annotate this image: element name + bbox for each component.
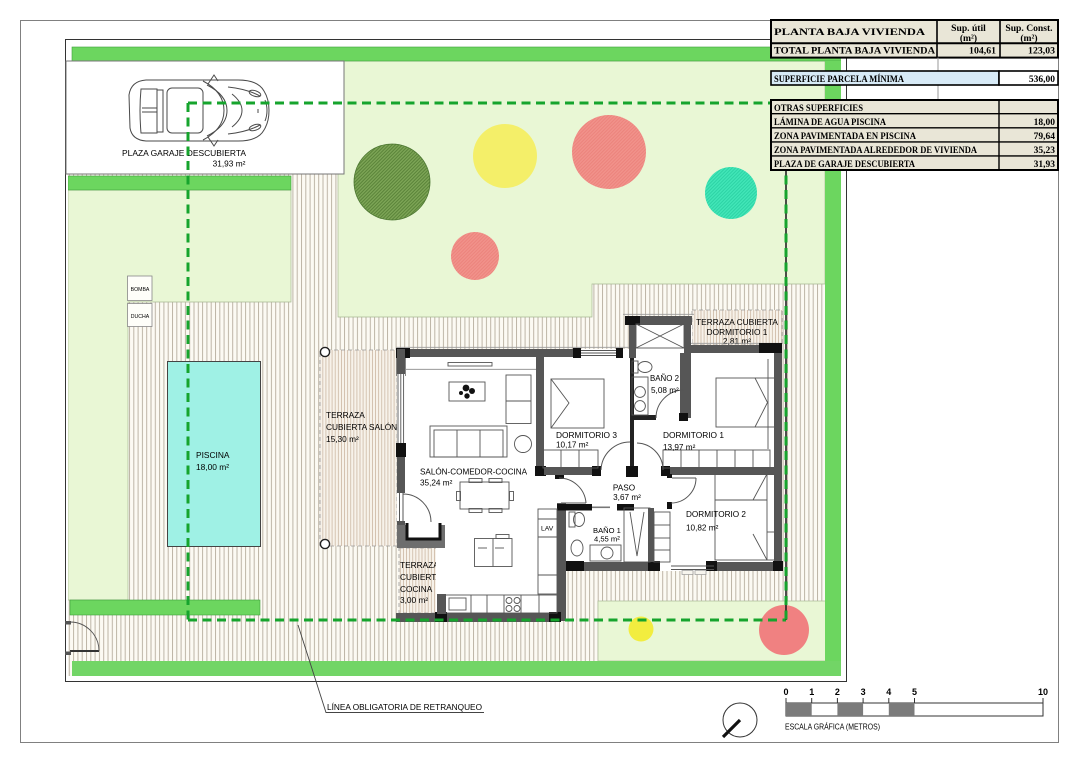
svg-text:TERRAZA CUBIERTA: TERRAZA CUBIERTA xyxy=(696,317,778,327)
svg-text:BAÑO 2: BAÑO 2 xyxy=(650,373,679,383)
svg-text:31,93: 31,93 xyxy=(1034,160,1056,170)
svg-text:10,82 m²: 10,82 m² xyxy=(686,524,719,533)
svg-text:10: 10 xyxy=(1038,687,1048,697)
svg-text:123,03: 123,03 xyxy=(1028,46,1055,57)
svg-text:2: 2 xyxy=(835,687,840,697)
svg-text:TOTAL PLANTA BAJA VIVIENDA: TOTAL PLANTA BAJA VIVIENDA xyxy=(774,46,935,57)
svg-text:LÁMINA DE AGUA PISCINA: LÁMINA DE AGUA PISCINA xyxy=(774,116,886,128)
svg-text:4,55 m²: 4,55 m² xyxy=(594,535,620,544)
svg-text:31,93 m²: 31,93 m² xyxy=(213,159,246,169)
svg-text:(m²): (m²) xyxy=(960,33,977,44)
svg-text:18,00 m²: 18,00 m² xyxy=(196,462,229,472)
svg-text:CUBIERTA: CUBIERTA xyxy=(400,572,442,582)
svg-text:5: 5 xyxy=(912,687,917,697)
svg-text:10,17 m²: 10,17 m² xyxy=(556,441,589,450)
svg-text:35,23: 35,23 xyxy=(1034,146,1056,156)
svg-text:79,64: 79,64 xyxy=(1034,132,1056,142)
svg-text:LAV: LAV xyxy=(541,526,554,533)
svg-text:536,00: 536,00 xyxy=(1029,75,1055,85)
svg-text:CUBIERTA SALÓN: CUBIERTA SALÓN xyxy=(326,422,397,432)
svg-text:SUPERFICIE PARCELA MÍNIMA: SUPERFICIE PARCELA MÍNIMA xyxy=(774,73,904,85)
svg-text:5,08 m²: 5,08 m² xyxy=(651,386,679,395)
svg-text:(m²): (m²) xyxy=(1020,33,1037,44)
svg-text:ZONA PAVIMENTADA EN PISCINA: ZONA PAVIMENTADA EN PISCINA xyxy=(774,132,916,142)
svg-text:3,00 m²: 3,00 m² xyxy=(400,595,428,605)
svg-text:1: 1 xyxy=(809,687,814,697)
svg-text:ESCALA GRÁFICA (METROS): ESCALA GRÁFICA (METROS) xyxy=(785,722,880,732)
svg-text:15,30 m²: 15,30 m² xyxy=(326,434,359,444)
svg-text:PLANTA BAJA VIVIENDA: PLANTA BAJA VIVIENDA xyxy=(774,27,925,38)
svg-text:BOMBA: BOMBA xyxy=(131,287,150,293)
svg-text:3: 3 xyxy=(861,687,866,697)
svg-text:3,67 m²: 3,67 m² xyxy=(613,493,641,502)
svg-text:DORMITORIO 2: DORMITORIO 2 xyxy=(686,510,746,519)
svg-text:DORMITORIO 1: DORMITORIO 1 xyxy=(663,431,724,440)
svg-text:104,61: 104,61 xyxy=(969,46,996,57)
svg-text:18,00: 18,00 xyxy=(1034,118,1056,128)
svg-text:LÍNEA OBLIGATORIA DE RETRANQUE: LÍNEA OBLIGATORIA DE RETRANQUEO xyxy=(327,702,483,712)
svg-text:4: 4 xyxy=(886,687,891,697)
svg-text:PLAZA DE GARAJE DESCUBIERTA: PLAZA DE GARAJE DESCUBIERTA xyxy=(774,160,915,170)
svg-text:13,97 m²: 13,97 m² xyxy=(663,443,696,452)
svg-text:PLAZA GARAJE DESCUBIERTA: PLAZA GARAJE DESCUBIERTA xyxy=(122,148,246,158)
svg-text:OTRAS SUPERFICIES: OTRAS SUPERFICIES xyxy=(774,104,863,114)
svg-text:COCINA: COCINA xyxy=(400,584,433,594)
svg-text:SALÓN-COMEDOR-COCINA: SALÓN-COMEDOR-COCINA xyxy=(420,467,528,477)
svg-text:DORMITORIO 3: DORMITORIO 3 xyxy=(556,431,617,440)
svg-text:DUCHA: DUCHA xyxy=(131,314,150,320)
svg-text:PISCINA: PISCINA xyxy=(196,450,230,460)
svg-text:35,24 m²: 35,24 m² xyxy=(420,479,453,488)
svg-text:TERRAZA: TERRAZA xyxy=(326,410,365,420)
svg-text:TERRAZA: TERRAZA xyxy=(400,560,439,570)
svg-text:2,81 m²: 2,81 m² xyxy=(723,336,751,346)
svg-text:0: 0 xyxy=(783,687,788,697)
svg-text:ZONA PAVIMENTADA ALREDEDOR DE: ZONA PAVIMENTADA ALREDEDOR DE VIVIENDA xyxy=(774,146,977,156)
svg-text:PASO: PASO xyxy=(613,484,635,493)
